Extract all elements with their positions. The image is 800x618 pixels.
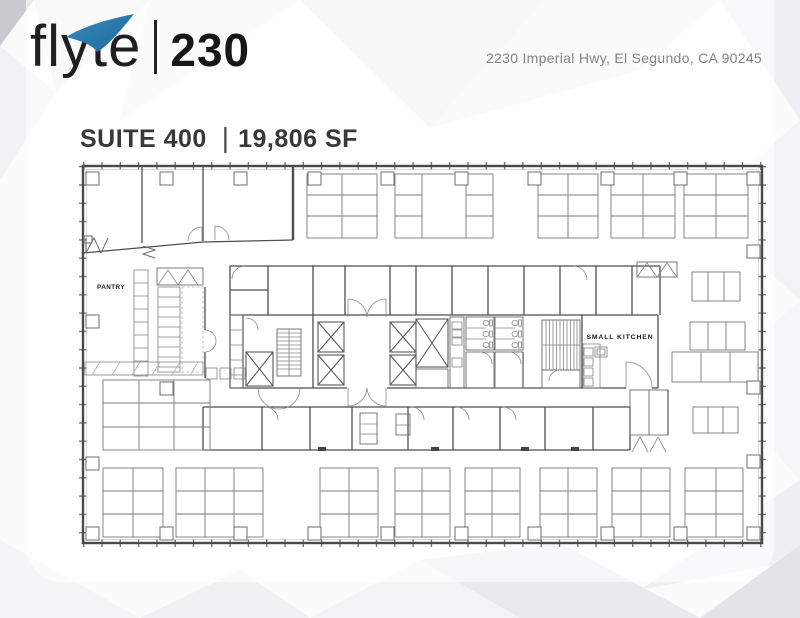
flyer-page: flyte 230 2230 Imperial Hwy, El Segundo,… [0, 0, 800, 618]
pantry-label: PANTRY [97, 284, 125, 291]
small-kitchen-label: SMALL KITCHEN [586, 334, 653, 341]
floor-plan-drawing: PANTRY SMALL KITCHEN [0, 0, 800, 618]
